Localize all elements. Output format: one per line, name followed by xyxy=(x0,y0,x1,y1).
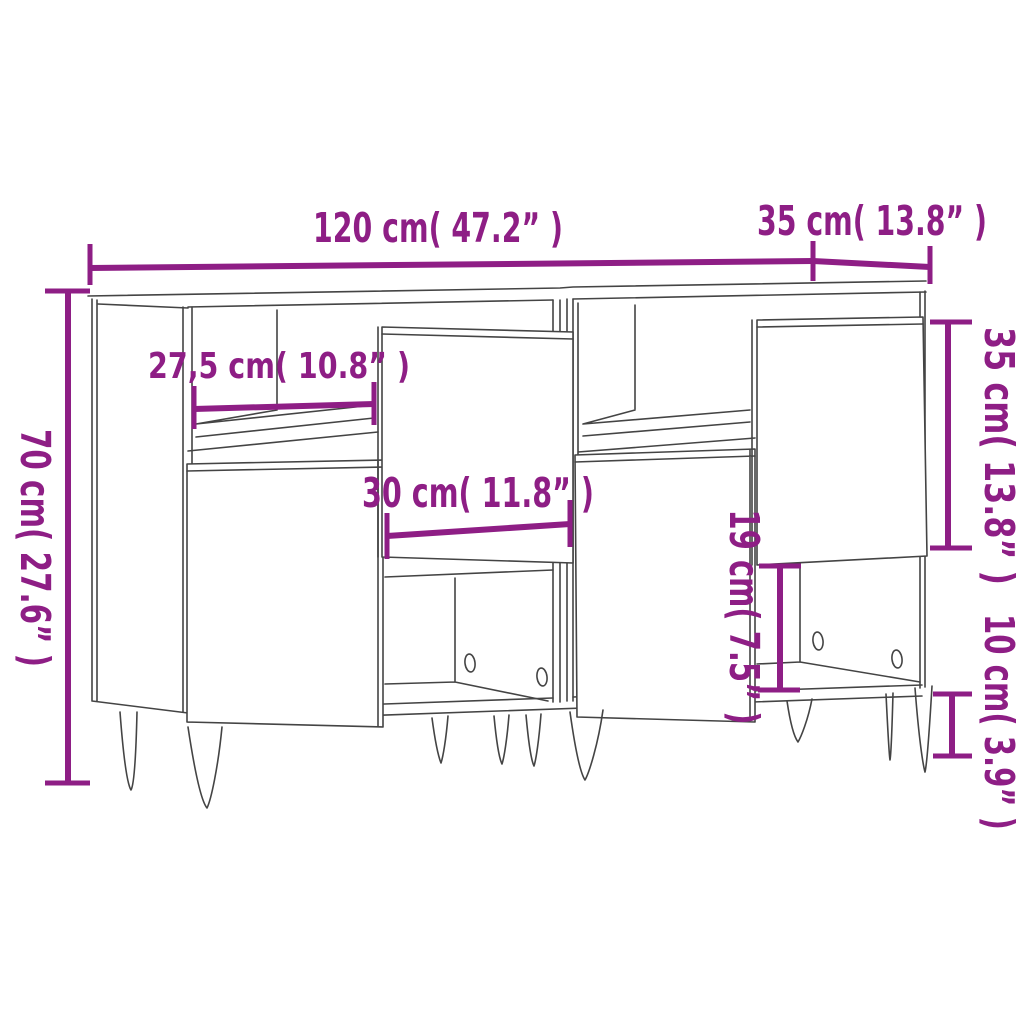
hairpin-leg xyxy=(915,686,932,772)
door-height-label: 35 cm( 13.8” ) xyxy=(975,327,1023,585)
right-top-niche xyxy=(578,303,755,454)
hairpin-leg xyxy=(494,715,509,764)
left-bottom-niche xyxy=(385,570,553,701)
screw-hole xyxy=(891,649,903,668)
door-width-label: 30 cm( 11.8” ) xyxy=(362,469,594,517)
hairpin-leg xyxy=(787,699,812,742)
left-lower-door xyxy=(187,460,383,727)
hairpin-leg xyxy=(570,710,603,780)
shelf-width-label: 27,5 cm( 10.8” ) xyxy=(148,346,410,387)
niche-height-label: 19 cm( 7.5” ) xyxy=(720,510,768,725)
screw-hole xyxy=(464,653,476,672)
right-open-door xyxy=(757,317,927,565)
leg-height-label: 10 cm( 3.9” ) xyxy=(975,614,1023,830)
depth-dimension-line xyxy=(813,261,930,267)
sideboard-diagram-canvas: 120 cm( 47.2” ) 35 cm( 13.8” ) 27,5 cm( … xyxy=(0,0,1024,1024)
hairpin-leg xyxy=(526,714,541,766)
total-width-label: 120 cm( 47.2” ) xyxy=(313,204,563,252)
total-width-dimension-line xyxy=(90,261,813,268)
hairpin-leg xyxy=(432,716,448,763)
screw-hole xyxy=(812,631,824,650)
dimension-diagram: 120 cm( 47.2” ) 35 cm( 13.8” ) 27,5 cm( … xyxy=(0,0,1024,1024)
screw-hole xyxy=(536,667,548,686)
depth-label: 35 cm( 13.8” ) xyxy=(757,197,987,245)
hairpin-leg xyxy=(188,727,222,808)
total-height-label: 70 cm( 27.6” ) xyxy=(11,429,59,667)
hairpin-leg xyxy=(120,712,137,790)
hairpin-leg xyxy=(886,693,893,760)
